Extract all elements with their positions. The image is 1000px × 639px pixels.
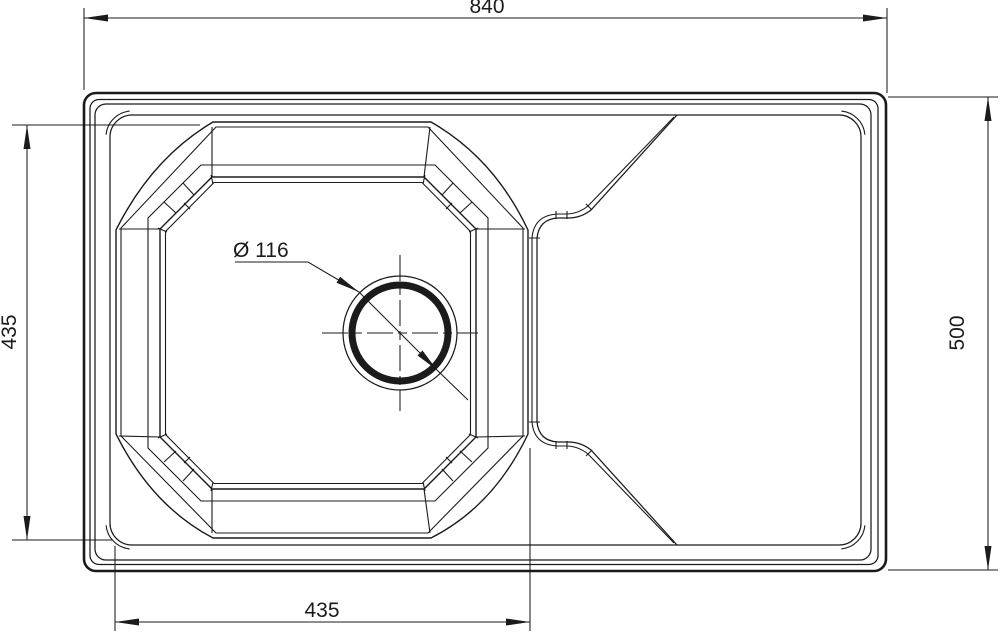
drainboard-edge-inner bbox=[532, 117, 674, 543]
dimension-bowl-width: 435 bbox=[115, 448, 530, 631]
drain-diameter-label: Ø 116 bbox=[233, 239, 289, 262]
drainboard-edge-ticks bbox=[529, 204, 592, 456]
right-extension-lines bbox=[888, 97, 998, 570]
sink-bowl bbox=[116, 122, 528, 538]
bottom-arrow-left bbox=[115, 619, 139, 626]
top-extension-lines bbox=[84, 8, 887, 93]
drain-leader-arrow-upper bbox=[337, 277, 360, 292]
drainboard bbox=[529, 115, 677, 545]
bowl-outer-contour-inner-line bbox=[121, 127, 523, 533]
rim-middle-edge bbox=[90, 100, 878, 565]
right-arrow-bottom bbox=[985, 546, 992, 570]
dimension-overall-width: 840 bbox=[84, 0, 887, 93]
dimension-bowl-depth: 435 bbox=[0, 125, 200, 540]
drainboard-edge-outer bbox=[537, 115, 677, 545]
top-arrow-right bbox=[863, 15, 887, 22]
sink-top-view-drawing: Ø 116 840 435 500 bbox=[0, 0, 1000, 639]
right-arrow-top bbox=[985, 97, 992, 121]
bottom-arrow-right bbox=[506, 619, 530, 626]
bowl-depth-label: 435 bbox=[0, 314, 21, 349]
dimension-overall-depth: 500 bbox=[888, 97, 998, 570]
left-arrow-top bbox=[24, 125, 31, 149]
left-arrow-bottom bbox=[24, 516, 31, 540]
left-extension-lines bbox=[12, 125, 200, 540]
overall-width-label: 840 bbox=[469, 0, 504, 18]
deck-inner-contour bbox=[110, 115, 861, 545]
bowl-corner-facets bbox=[164, 183, 472, 481]
bowl-outer-contour bbox=[116, 122, 528, 538]
drain-leader-arrow-lower bbox=[418, 351, 438, 371]
bowl-width-label: 435 bbox=[304, 599, 339, 622]
rim-inner-edge bbox=[95, 104, 871, 560]
top-arrow-left bbox=[84, 15, 108, 22]
technical-drawing-page: Ø 116 840 435 500 bbox=[0, 0, 1000, 639]
overall-depth-label: 500 bbox=[946, 315, 969, 350]
